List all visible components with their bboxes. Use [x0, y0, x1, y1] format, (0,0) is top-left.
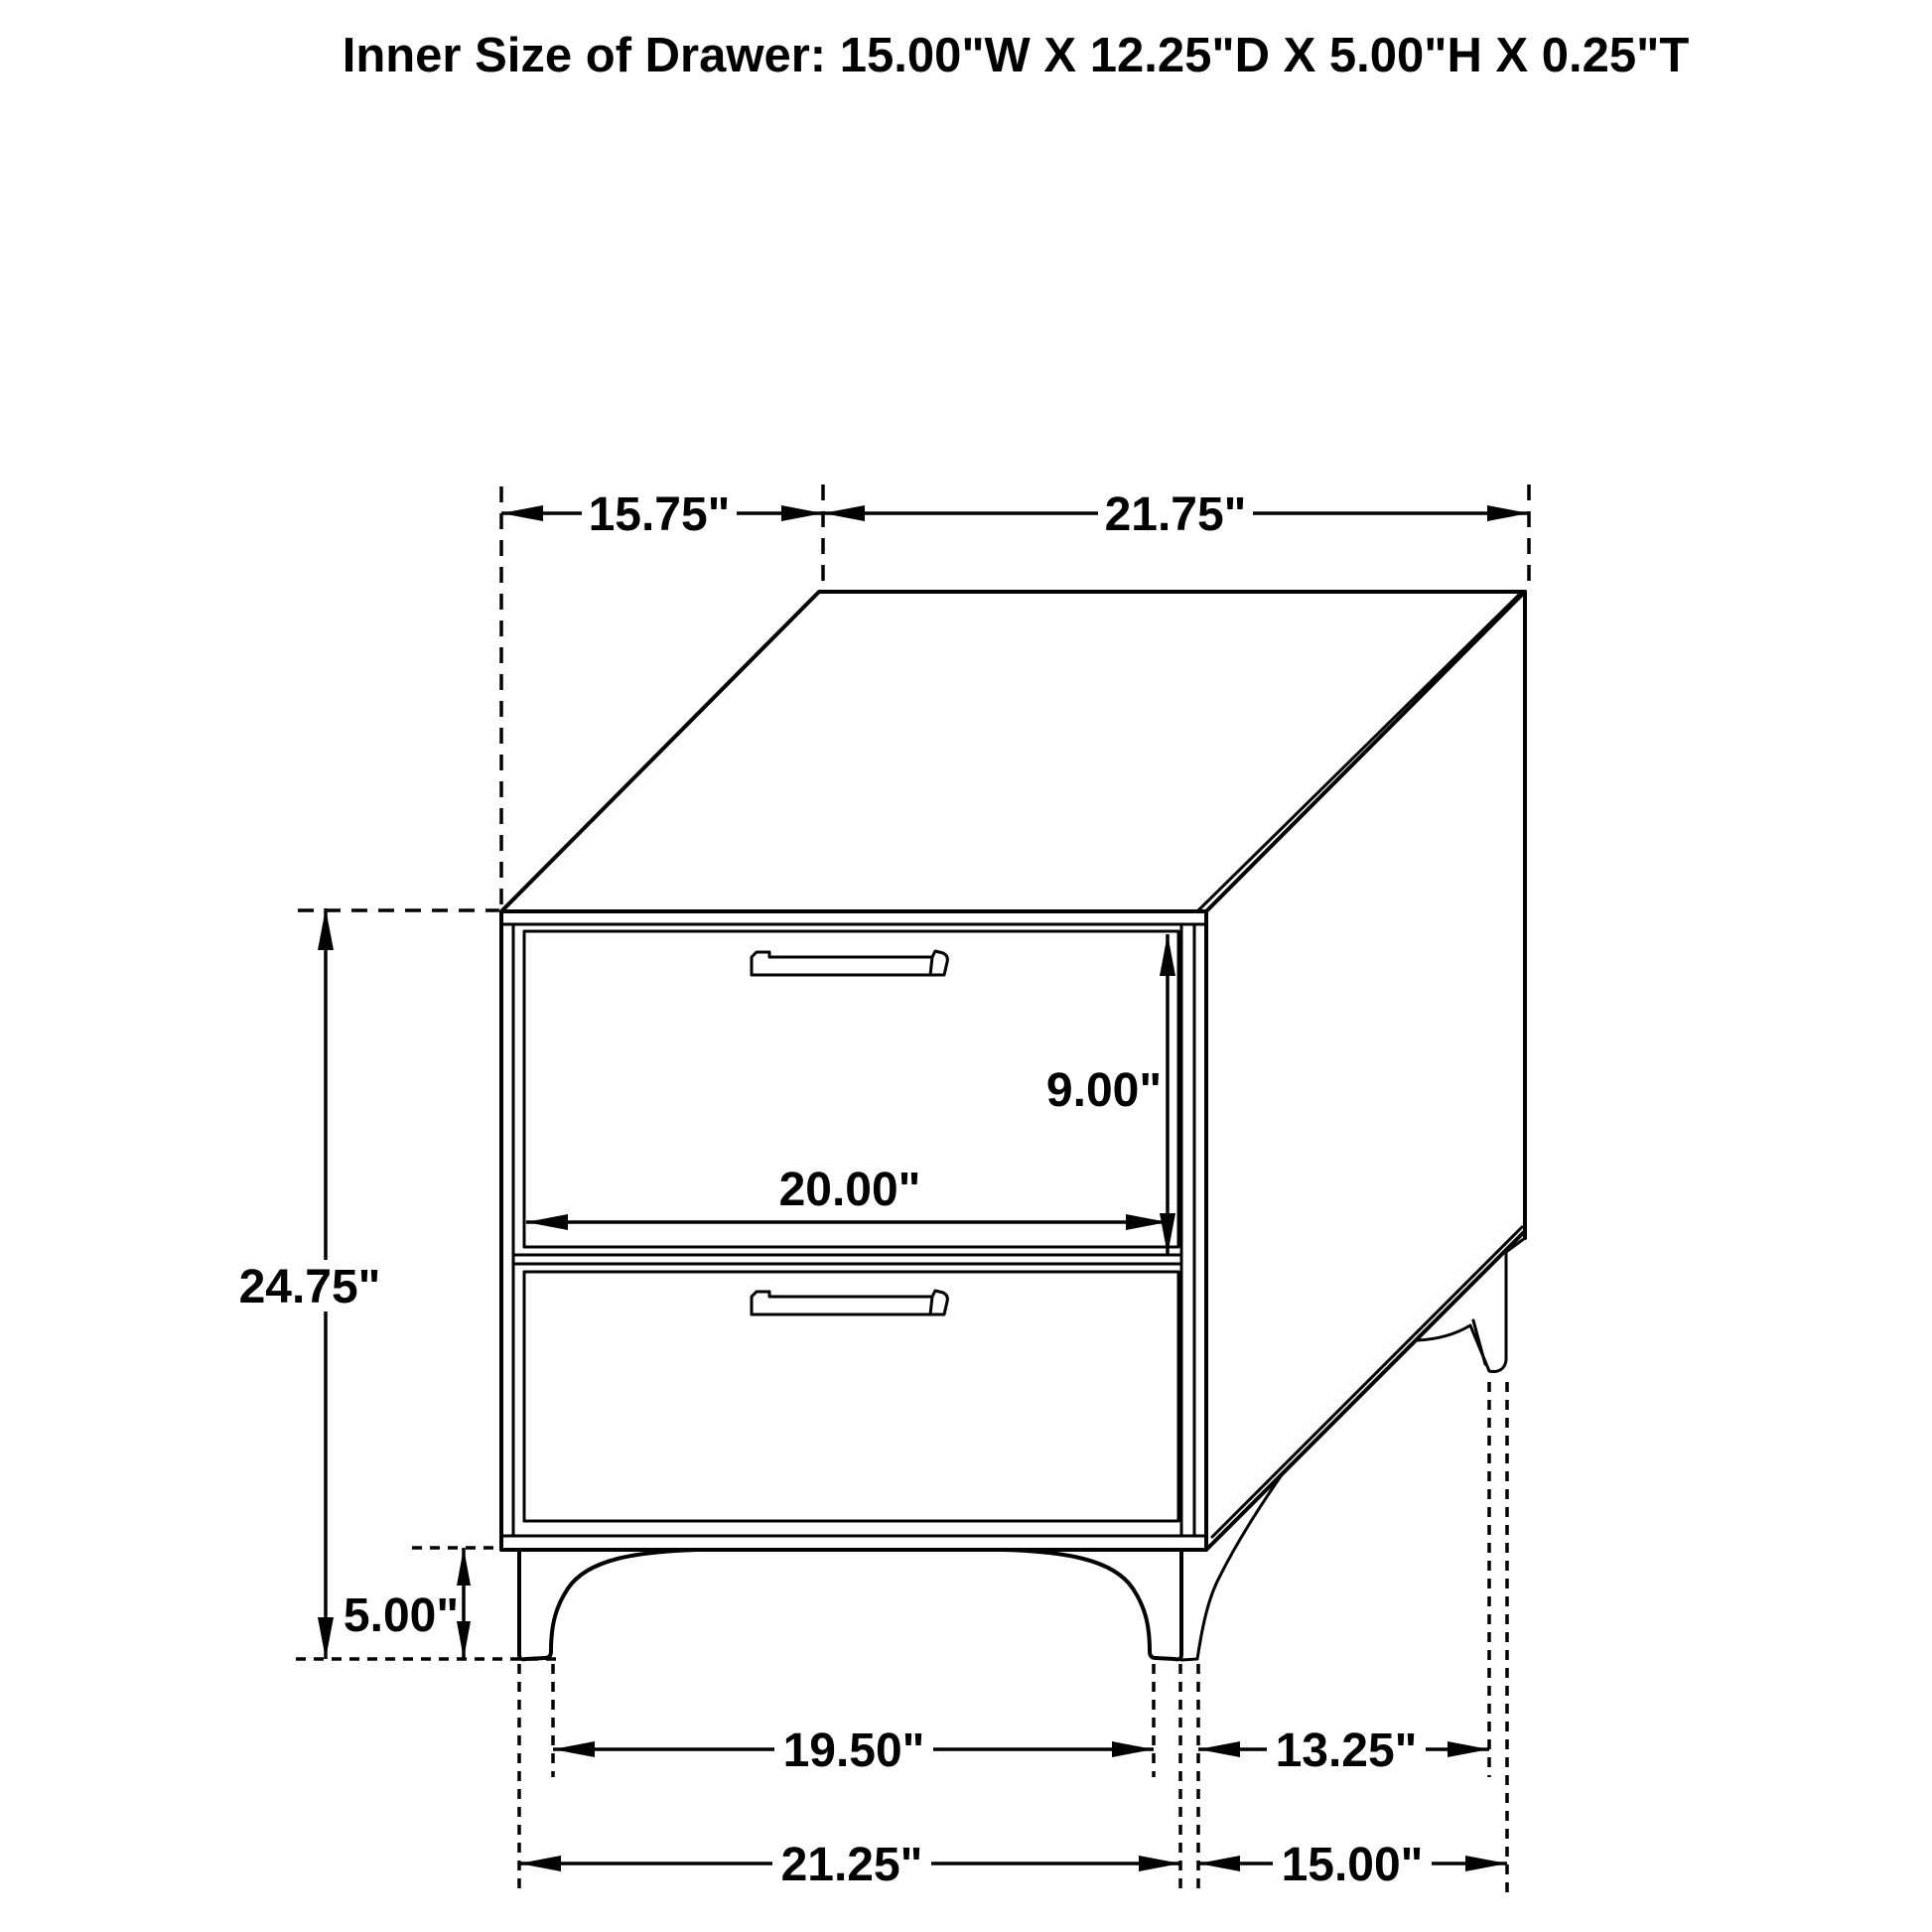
dim-top-depth: 15.75": [501, 487, 823, 541]
cabinet-front-face: [501, 911, 1206, 1550]
cabinet-top-face: [501, 592, 1525, 911]
dim-top-depth-label: 15.75": [589, 488, 731, 541]
dim-side-leg-outer-span: 15.00": [1198, 1838, 1507, 1891]
diagram-title: Inner Size of Drawer: 15.00"W X 12.25"D …: [343, 29, 1690, 82]
furniture-dimension-diagram: Inner Size of Drawer: 15.00"W X 12.25"D …: [0, 0, 1932, 1932]
drawer-bottom: [524, 1272, 1178, 1521]
dim-drawer-height: 9.00": [1046, 934, 1175, 1255]
dim-leg-height: 5.00": [344, 1548, 471, 1659]
drawer-top-handle: [752, 951, 947, 975]
dim-side-leg-inner-span: 13.25": [1198, 1724, 1489, 1777]
nightstand-schematic: Inner Size of Drawer: 15.00"W X 12.25"D …: [0, 0, 1932, 1932]
dim-front-leg-inner-span-label: 19.50": [783, 1725, 925, 1777]
dim-drawer-width: 20.00": [526, 1164, 1168, 1230]
back-right-leg: [1418, 1238, 1525, 1372]
dim-front-leg-inner-span: 19.50": [553, 1724, 1154, 1777]
dim-side-leg-inner-span-label: 13.25": [1276, 1725, 1418, 1777]
dim-front-leg-outer-span: 21.25": [519, 1838, 1180, 1891]
dim-side-leg-outer-span-label: 15.00": [1282, 1839, 1424, 1891]
cabinet-side-face: [1206, 592, 1525, 1550]
dim-top-width-label: 21.75": [1105, 488, 1247, 541]
drawer-bottom-handle: [752, 1291, 947, 1314]
dim-leg-height-label: 5.00": [344, 1589, 459, 1642]
dim-overall-height: 24.75": [226, 908, 393, 1659]
front-right-leg: [1004, 1473, 1283, 1660]
dim-drawer-width-label: 20.00": [779, 1164, 921, 1216]
dim-top-width: 21.75": [823, 487, 1529, 541]
dim-front-leg-outer-span-label: 21.25": [781, 1839, 923, 1891]
front-left-leg: [519, 1550, 697, 1659]
dim-overall-height-label: 24.75": [239, 1261, 381, 1313]
dim-drawer-height-label: 9.00": [1046, 1064, 1162, 1117]
